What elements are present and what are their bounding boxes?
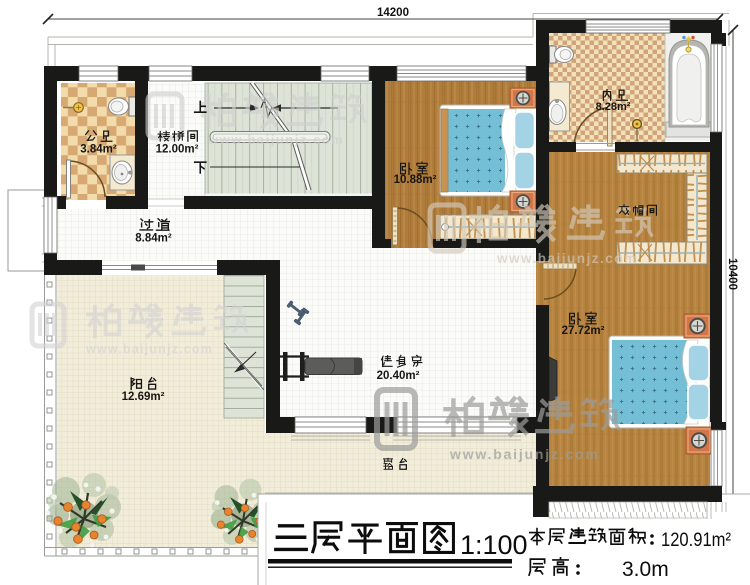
svg-text:12.69m²: 12.69m²: [122, 391, 165, 403]
svg-text:www.baijunjz.com: www.baijunjz.com: [207, 132, 344, 147]
svg-text:www.baijunjz.com: www.baijunjz.com: [449, 446, 600, 462]
svg-text:3.84m²: 3.84m²: [80, 144, 117, 156]
svg-text:www.baijunjz.com: www.baijunjz.com: [85, 342, 213, 356]
svg-text:3.0m: 3.0m: [622, 558, 669, 581]
svg-text:12.00m²: 12.00m²: [156, 144, 199, 156]
svg-text:10.88m²: 10.88m²: [394, 174, 437, 186]
svg-text:8.84m²: 8.84m²: [135, 233, 172, 245]
svg-text:10400: 10400: [726, 258, 738, 290]
svg-text:8.28m²: 8.28m²: [596, 101, 631, 113]
svg-text:27.72m²: 27.72m²: [562, 325, 605, 337]
svg-text:120.91m²: 120.91m²: [661, 529, 731, 551]
svg-text:14200: 14200: [377, 7, 409, 19]
svg-text:www.baijunjz.com: www.baijunjz.com: [496, 251, 638, 266]
svg-text:1:100: 1:100: [460, 530, 528, 560]
svg-text:20.40m²: 20.40m²: [377, 370, 420, 382]
